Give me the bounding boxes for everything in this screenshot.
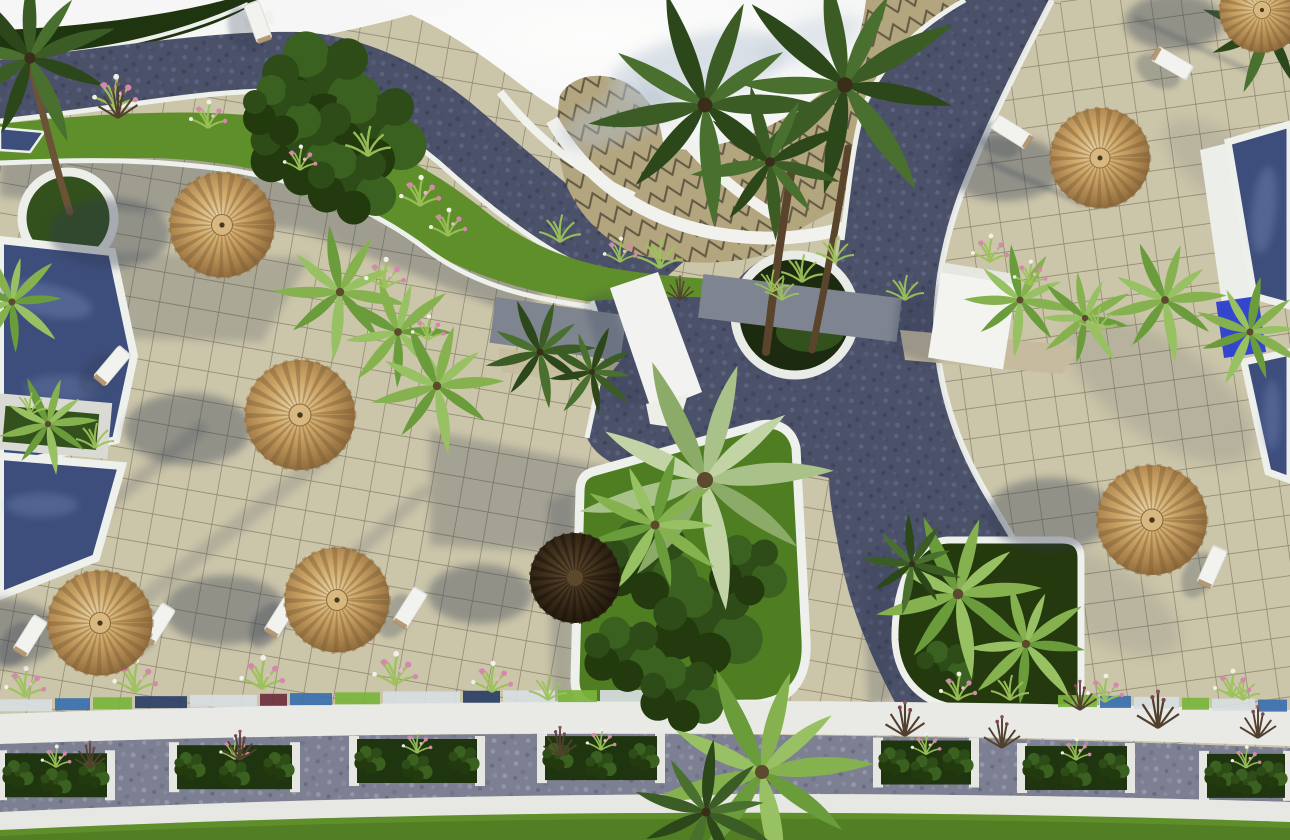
resort-aerial-render bbox=[0, 0, 1290, 840]
umbrella-shadow bbox=[49, 198, 171, 267]
straw-umbrella-icon bbox=[48, 571, 153, 676]
curb-segment bbox=[335, 692, 380, 704]
curb-segment bbox=[1182, 698, 1209, 710]
straw-umbrella-icon bbox=[170, 173, 275, 278]
straw-umbrella-icon bbox=[1097, 465, 1207, 575]
umbrella-shadow bbox=[428, 564, 532, 623]
curb-segment bbox=[558, 690, 597, 702]
curb-segment bbox=[0, 699, 52, 711]
curb-segment bbox=[383, 691, 460, 703]
curb-segment bbox=[260, 694, 287, 706]
curb-segment bbox=[93, 697, 132, 709]
umbrella-shadow bbox=[986, 478, 1114, 551]
curb-segment bbox=[135, 696, 187, 708]
curb-segment bbox=[1212, 699, 1255, 711]
curb-segment bbox=[1258, 700, 1287, 712]
straw-umbrella-icon bbox=[1050, 108, 1150, 208]
curb-segment bbox=[55, 698, 90, 710]
curb-segment bbox=[463, 691, 500, 703]
straw-umbrella-icon bbox=[245, 360, 355, 470]
resort-aerial-scene bbox=[0, 0, 1290, 840]
straw-umbrella-icon bbox=[285, 548, 390, 653]
curb-segment bbox=[290, 693, 332, 705]
curb-segment bbox=[600, 690, 647, 702]
curb-segment bbox=[190, 695, 257, 707]
umbrella-shadow bbox=[124, 393, 252, 466]
dark-umbrella-icon bbox=[530, 533, 620, 623]
